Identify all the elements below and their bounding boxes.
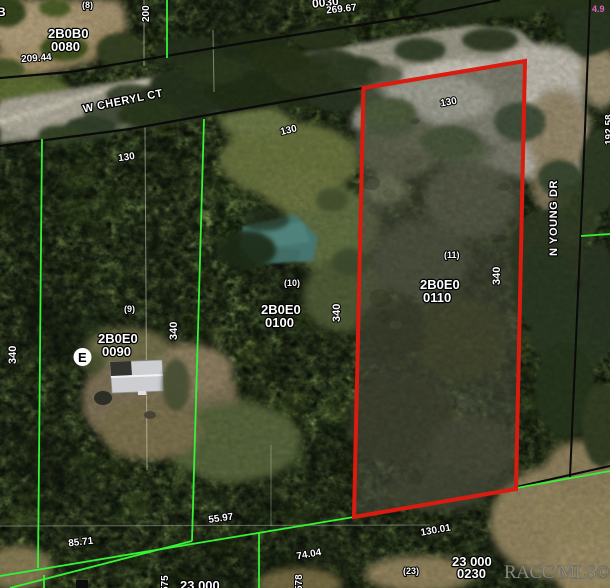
svg-text:340: 340	[331, 304, 343, 322]
svg-text:4.9: 4.9	[592, 4, 605, 14]
svg-text:192.58: 192.58	[604, 114, 610, 145]
svg-text:(23): (23)	[403, 566, 419, 576]
svg-text:575: 575	[160, 575, 171, 588]
svg-text:B: B	[0, 5, 6, 19]
svg-text:(8): (8)	[82, 0, 93, 10]
svg-text:340: 340	[491, 267, 503, 285]
svg-text:0110: 0110	[423, 290, 451, 305]
svg-text:340: 340	[168, 322, 180, 340]
svg-text:N YOUNG DR: N YOUNG DR	[548, 180, 560, 256]
svg-text:(9): (9)	[124, 304, 135, 314]
svg-text:0080: 0080	[51, 39, 80, 54]
svg-text:(11): (11)	[444, 250, 460, 260]
svg-text:209.44: 209.44	[21, 52, 53, 65]
svg-text:RACC/MLS©: RACC/MLS©	[504, 562, 610, 583]
svg-text:578: 578	[294, 574, 305, 588]
svg-text:(10): (10)	[284, 278, 300, 288]
svg-text:0090: 0090	[102, 344, 131, 359]
svg-text:200: 200	[141, 5, 152, 22]
svg-text:0100: 0100	[265, 315, 294, 330]
svg-text:340: 340	[7, 346, 19, 364]
svg-text:0230: 0230	[457, 566, 486, 581]
svg-text:23 000: 23 000	[180, 578, 220, 588]
svg-text:E: E	[78, 350, 87, 365]
